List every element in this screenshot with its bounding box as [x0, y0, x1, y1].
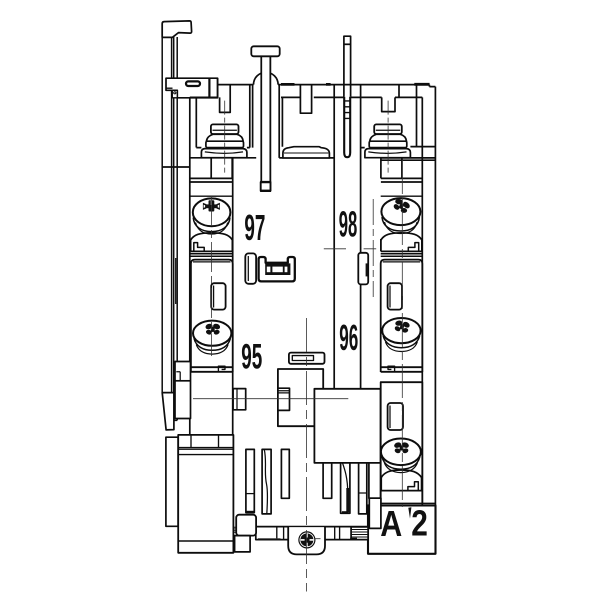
- svg-text:97: 97: [244, 207, 265, 248]
- svg-text:96: 96: [339, 317, 358, 358]
- svg-text:2: 2: [411, 502, 428, 543]
- svg-text:A: A: [380, 503, 402, 544]
- svg-text:95: 95: [241, 336, 262, 376]
- svg-text:98: 98: [339, 204, 358, 245]
